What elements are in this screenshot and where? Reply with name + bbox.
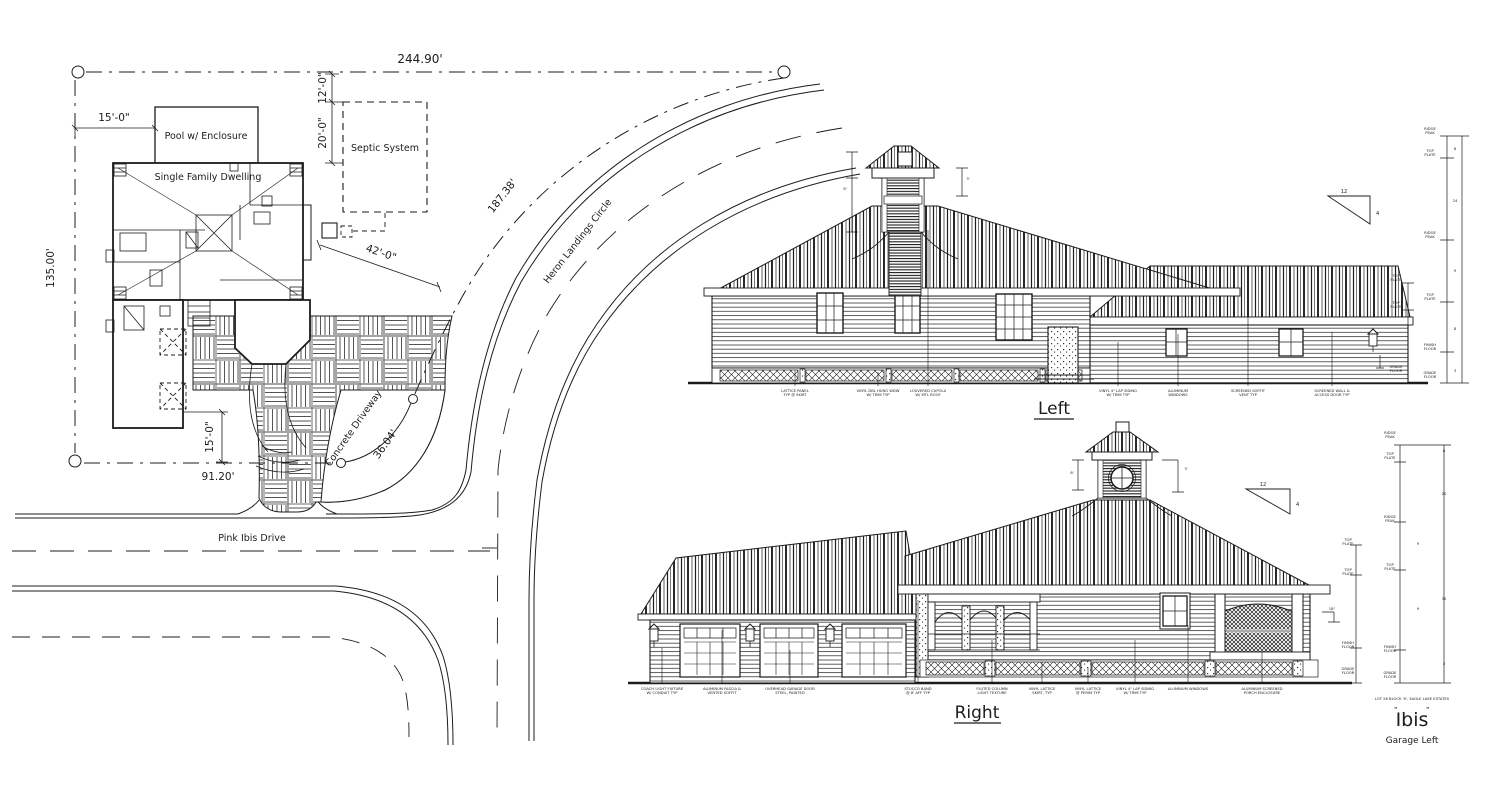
svg-text:OVERHEAD GARAGE DOORSTEEL, PAI: OVERHEAD GARAGE DOORSTEEL, PAINTED: [765, 687, 815, 695]
svg-text:FINISHFLOOR: FINISHFLOOR: [1384, 645, 1397, 653]
left-elevation-callouts: LATTICE PANELTYP @ SKIRTVINYL DBL HUNG W…: [781, 389, 1350, 397]
title-block: LOT 26 BLOCK 'X', EAGLE LAKE ESTATES ” ”…: [1375, 697, 1450, 746]
svg-text:30: 30: [1442, 597, 1447, 601]
street-name-bottom: Pink Ibis Drive: [218, 533, 286, 544]
svg-text:RIDGEPEAK: RIDGEPEAK: [1384, 515, 1396, 523]
svg-text:TOPPLATE: TOPPLATE: [1384, 563, 1396, 571]
svg-text:ALUMINUM WINDOWS: ALUMINUM WINDOWS: [1168, 687, 1209, 691]
dim-front-width: 244.90': [397, 52, 442, 66]
svg-text:ALUMINUMWINDOWS: ALUMINUMWINDOWS: [1168, 389, 1188, 397]
svg-text:GRADEFLOOR: GRADEFLOOR: [1390, 365, 1404, 373]
svg-text:TOPPLATE: TOPPLATE: [1424, 293, 1436, 301]
blueprint-sheet: 244.90' 135.00' 15'-0" 12'-0" 20'-0" 42'…: [0, 0, 1489, 806]
svg-text:LOUVERED CUPOLAW/ MTL ROOF: LOUVERED CUPOLAW/ MTL ROOF: [910, 389, 947, 397]
dwelling-label: Single Family Dwelling: [155, 172, 262, 183]
svg-text:TOPPLATE: TOPPLATE: [1424, 149, 1436, 157]
garage-roof: [641, 531, 920, 614]
svg-text:SCREENED SOFFITVENT TYP: SCREENED SOFFITVENT TYP: [1231, 389, 1266, 397]
right-elevation: 12 4 RIDGEPEAKTOPPLATERIDGEPEAKTOPPLATET…: [628, 422, 1451, 746]
svg-text:3: 3: [1454, 369, 1457, 373]
svg-text:FINISHFLOOR: FINISHFLOOR: [1342, 641, 1355, 649]
svg-text:VINYL 4" LAP SIDINGW/ TRIM TYP: VINYL 4" LAP SIDINGW/ TRIM TYP: [1099, 389, 1137, 397]
svg-text:FINISHFLOOR: FINISHFLOOR: [1424, 343, 1437, 351]
svg-text:GRADEFLOOR: GRADEFLOOR: [1342, 667, 1356, 675]
dim-front-segment: 91.20': [202, 471, 235, 483]
left-elevation-title: Left: [1038, 399, 1070, 419]
svg-text:VINYL DBL HUNG WDWW/ TRIM TYP: VINYL DBL HUNG WDWW/ TRIM TYP: [857, 389, 900, 397]
dim-side-depth: 135.00': [45, 248, 57, 288]
skirt-lattice: [720, 369, 1082, 382]
svg-text:FLUTED COLUMNLIGHT TEXTURE: FLUTED COLUMNLIGHT TEXTURE: [976, 687, 1008, 695]
main-hip-roof-right: [905, 500, 1322, 592]
svg-text:4: 4: [1376, 211, 1379, 217]
roof-pitch-left: 12 4: [1328, 189, 1379, 224]
plan-variant: Garage Left: [1386, 736, 1439, 746]
svg-text:RIDGEPEAK: RIDGEPEAK: [1424, 127, 1436, 135]
dim-drive-setback: 15'-0": [204, 421, 216, 453]
roof-pitch-right: 12 4: [1246, 482, 1299, 514]
blueprint-drawing: 244.90' 135.00' 15'-0" 12'-0" 20'-0" 42'…: [0, 0, 1489, 806]
wing-wall: [1090, 325, 1408, 383]
svg-text:3': 3': [1184, 467, 1187, 471]
svg-text:8': 8': [843, 187, 846, 191]
svg-text:GRADEFLOOR: GRADEFLOOR: [1384, 671, 1398, 679]
svg-text:8: 8: [1454, 327, 1457, 331]
svg-text:COACH LIGHT FIXTUREW/ CONDUIT: COACH LIGHT FIXTUREW/ CONDUIT TYP: [641, 687, 684, 695]
plan-name: Ibis: [1396, 709, 1429, 731]
svg-text:VINYL LATTICE@ PERIM TYP: VINYL LATTICE@ PERIM TYP: [1075, 687, 1102, 695]
svg-text:8: 8: [1443, 449, 1446, 453]
svg-text:ALUMINUM FASCIA &VENTED SOFFIT: ALUMINUM FASCIA &VENTED SOFFIT: [703, 687, 741, 695]
svg-text:20: 20: [1442, 492, 1447, 496]
septic-label: Septic System: [351, 143, 419, 154]
svg-text:RIDGEPEAK: RIDGEPEAK: [1384, 431, 1396, 439]
lot-line: LOT 26 BLOCK 'X', EAGLE LAKE ESTATES: [1375, 697, 1450, 701]
main-eave: [704, 288, 1240, 296]
right-skirt: [920, 660, 1318, 677]
dim-street-curve: 187.38': [486, 177, 520, 216]
svg-text:LATTICE PANELTYP @ SKIRT: LATTICE PANELTYP @ SKIRT: [781, 389, 810, 397]
svg-text:8': 8': [1070, 471, 1073, 475]
svg-text:TOPPLATE: TOPPLATE: [1384, 452, 1396, 460]
main-eave-right: [898, 585, 1330, 594]
svg-text:VINYL 4" LAP SIDINGW/ TRIM TYP: VINYL 4" LAP SIDINGW/ TRIM TYP: [1116, 687, 1154, 695]
svg-text:TOPPLATE: TOPPLATE: [1342, 568, 1354, 576]
svg-text:RIDGEPEAK: RIDGEPEAK: [1424, 231, 1436, 239]
svg-text:TOPPLATE: TOPPLATE: [1342, 538, 1354, 546]
svg-text:3: 3: [1443, 662, 1446, 666]
svg-text:9: 9: [1417, 542, 1420, 546]
street-name-curved: Heron Landings Circle: [542, 197, 615, 286]
svg-text:ALUMINUM SCREENEDPORCH ENCLOSU: ALUMINUM SCREENEDPORCH ENCLOSURE: [1241, 687, 1282, 695]
svg-text:3': 3': [966, 177, 969, 181]
dim-septic-depth: 20'-0": [317, 117, 329, 149]
dim-septic-width: 12'-0": [317, 72, 329, 104]
pool-label: Pool w/ Enclosure: [165, 131, 248, 142]
svg-text:GRADEFLOOR: GRADEFLOOR: [1424, 371, 1438, 379]
right-elevation-window: [1160, 593, 1190, 629]
svg-text:9: 9: [1417, 607, 1420, 611]
svg-text:9: 9: [1454, 269, 1457, 273]
svg-text:STUCCO BAND@ 8' AFF TYP: STUCCO BAND@ 8' AFF TYP: [904, 687, 931, 695]
svg-text:4: 4: [1296, 502, 1299, 508]
svg-text:18": 18": [1329, 607, 1336, 611]
left-elevation: 12 4 RIDGEPEAKTOPPLATERIDGEPEAKTOPPLATET…: [688, 127, 1469, 419]
svg-text:12: 12: [1341, 189, 1347, 195]
svg-text:SCREENED WALL &ACCESS DOOR TYP: SCREENED WALL &ACCESS DOOR TYP: [1314, 389, 1350, 397]
main-hip-roof: [706, 206, 1236, 296]
right-elevation-title: Right: [955, 703, 1000, 723]
garage-doors: [680, 624, 906, 677]
svg-text:VINYL LATTICESKIRT, TYP: VINYL LATTICESKIRT, TYP: [1029, 687, 1056, 695]
septic-system: [322, 102, 427, 238]
svg-text:12: 12: [1260, 482, 1266, 488]
svg-text:8: 8: [1454, 147, 1457, 151]
right-elevation-callouts: COACH LIGHT FIXTUREW/ CONDUIT TYPALUMINU…: [641, 687, 1283, 695]
dim-house-to-street: 42'-0": [364, 242, 398, 264]
svg-text:24: 24: [1453, 199, 1458, 203]
screened-porch: [1210, 594, 1310, 660]
dim-pool-setback: 15'-0": [98, 112, 130, 124]
